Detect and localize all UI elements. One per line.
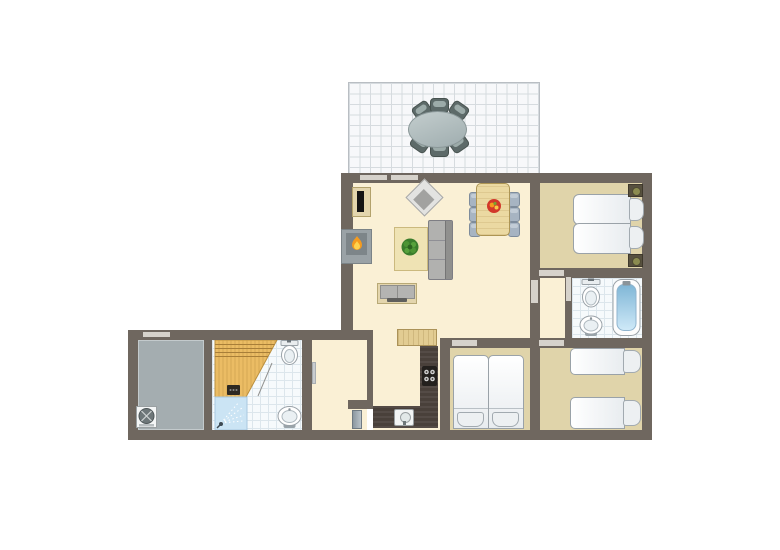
- lamp-icon: [632, 187, 641, 196]
- sideboard-handles: [387, 298, 407, 302]
- sofa-cushion-line: [429, 240, 445, 241]
- bed-pillow: [629, 226, 644, 249]
- wall-storage-right: [204, 340, 212, 430]
- wall-bottom: [128, 430, 652, 440]
- bed-pillow: [623, 400, 641, 426]
- sauna: [215, 340, 277, 397]
- nightstand-lamp: [628, 254, 643, 267]
- kitchen-sink-icon: [394, 409, 414, 426]
- window-marker: [143, 332, 170, 337]
- bathroom1-fixtures: [572, 278, 642, 338]
- tv-screen: [357, 191, 364, 212]
- flame-icon: [351, 236, 363, 251]
- tv-cabinet: [352, 187, 371, 217]
- stove-icon: [422, 366, 437, 386]
- wall-bathroom2-right: [302, 340, 312, 430]
- sink-tap: [403, 421, 406, 425]
- room-terrace: [348, 82, 540, 175]
- bed-pillow: [623, 350, 641, 373]
- door-opening-corridor: [531, 280, 538, 303]
- duvet-fold-line: [489, 408, 523, 409]
- wall-hall-right-upper: [367, 340, 373, 402]
- nightstand-lamp: [628, 184, 643, 197]
- entry-door-leaf: [352, 410, 362, 429]
- wall-bedroom3-left: [440, 348, 450, 430]
- bed-mattress: [573, 194, 631, 225]
- sofa-cushion-line: [429, 259, 445, 260]
- wall-bedroom3-right: [530, 348, 540, 430]
- wall-right: [642, 183, 652, 440]
- fan-icon: [137, 407, 156, 427]
- window-marker: [360, 175, 387, 180]
- sideboard-divider: [397, 286, 398, 298]
- bathroom2-fixtures: [212, 340, 302, 430]
- stove-burners: [422, 366, 437, 386]
- door-opening-bathroom1: [566, 277, 571, 301]
- door-opening-bedroom1: [539, 270, 564, 276]
- ventilation-fan-unit: [136, 406, 157, 428]
- sideboard: [377, 283, 417, 304]
- bed-pillow: [457, 412, 484, 427]
- plant-icon: [400, 237, 420, 257]
- chair-seat: [453, 103, 466, 115]
- bed-pillow: [492, 412, 519, 427]
- window-marker: [391, 175, 418, 180]
- toilet-icon: [281, 340, 298, 365]
- wall-bedroom1-left: [530, 183, 540, 348]
- washbasin-icon: [278, 407, 301, 429]
- floor-plan-canvas: [0, 0, 780, 550]
- bed-pillow: [629, 198, 644, 221]
- sofa-backrest: [445, 221, 452, 279]
- bathroom2-door-leaf: [312, 362, 316, 384]
- toilet-icon: [582, 279, 600, 308]
- bathtub-icon: [613, 280, 640, 336]
- chair-back: [510, 194, 518, 198]
- chair-back: [510, 209, 518, 213]
- wall-hall-nook: [348, 400, 373, 409]
- fireplace: [341, 229, 372, 264]
- washbasin-icon: [580, 316, 602, 336]
- wall-top: [341, 173, 652, 183]
- bed-mattress: [570, 397, 625, 429]
- sideboard-top: [380, 285, 415, 299]
- door-opening-bedroom2: [539, 340, 564, 346]
- shower: [215, 397, 247, 430]
- duvet-fold-line: [454, 408, 488, 409]
- oval-patio-table: [408, 111, 467, 148]
- sofa: [428, 220, 453, 280]
- corridor: [540, 278, 565, 338]
- bed-mattress: [573, 223, 631, 254]
- armchair-seat: [413, 189, 434, 210]
- kitchen-island: [397, 329, 437, 346]
- chair-seat: [433, 101, 446, 107]
- lamp-icon: [632, 257, 641, 266]
- fruit-bowl-icon: [486, 198, 502, 214]
- chair-back: [510, 224, 518, 228]
- door-opening-bedroom3: [452, 340, 477, 346]
- bed-mattress: [570, 348, 625, 375]
